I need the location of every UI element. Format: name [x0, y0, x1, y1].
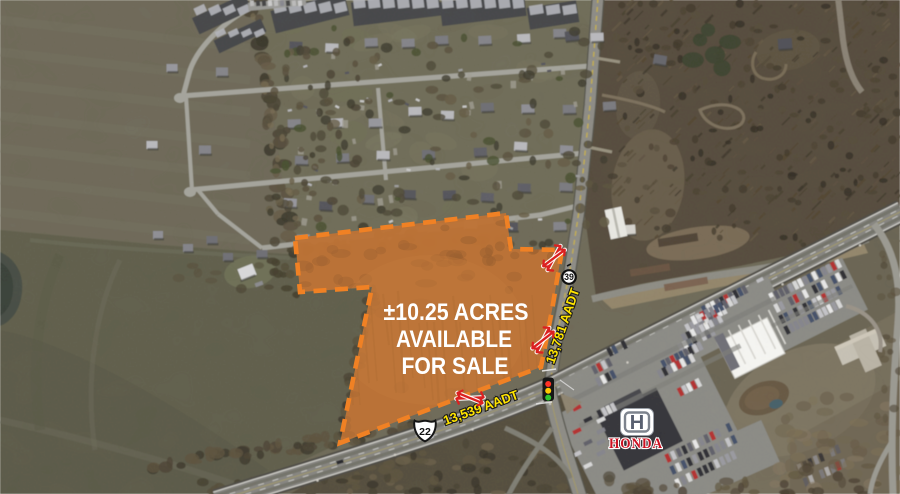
svg-text:HONDA: HONDA [609, 436, 663, 452]
svg-text:H: H [630, 412, 644, 434]
svg-text:±10.25 ACRES: ±10.25 ACRES [384, 299, 529, 326]
svg-text:FOR SALE: FOR SALE [402, 353, 509, 380]
svg-text:39: 39 [564, 272, 574, 282]
svg-text:22: 22 [419, 426, 431, 438]
svg-text:AVAILABLE: AVAILABLE [396, 326, 512, 353]
